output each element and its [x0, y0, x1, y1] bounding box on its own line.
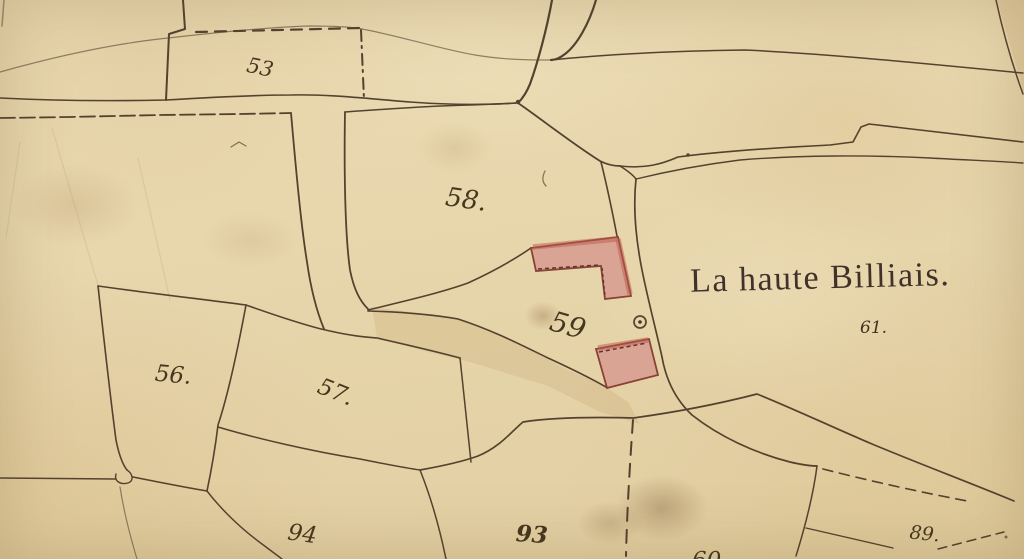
parcel-label-58: 58. [444, 182, 489, 217]
corner-shade [997, 0, 1024, 92]
parcel-label-61: 61. [860, 318, 887, 338]
well-marker-center [638, 320, 642, 324]
parcel-label-56: 56. [154, 361, 193, 390]
road-lines-hamlet [516, 100, 1023, 556]
pencil-lines [6, 128, 170, 300]
parcel-label-60: 60 [692, 548, 721, 559]
ink-dot-right [1005, 536, 1008, 539]
placename-label: La haute Billiais. [690, 256, 951, 300]
parcel-label-53: 53 [245, 53, 276, 82]
parcel-label-89: 89. [909, 521, 941, 546]
map-drawing: 53 58. 56. 57. 59 61. 94 93 60 89. La ha… [0, 0, 1024, 559]
cadastral-map[interactable]: 53 58. 56. 57. 59 61. 94 93 60 89. La ha… [0, 0, 1024, 559]
parcel-label-57: 57. [314, 374, 358, 412]
parcel-label-93: 93 [515, 520, 549, 549]
junction-ink-dot [516, 100, 520, 104]
parcel-label-59: 59 [546, 305, 589, 347]
parcel-labels: 53 58. 56. 57. 59 61. 94 93 60 89. [154, 53, 941, 559]
parcel-label-94: 94 [286, 519, 319, 549]
ink-fleck [686, 153, 689, 156]
